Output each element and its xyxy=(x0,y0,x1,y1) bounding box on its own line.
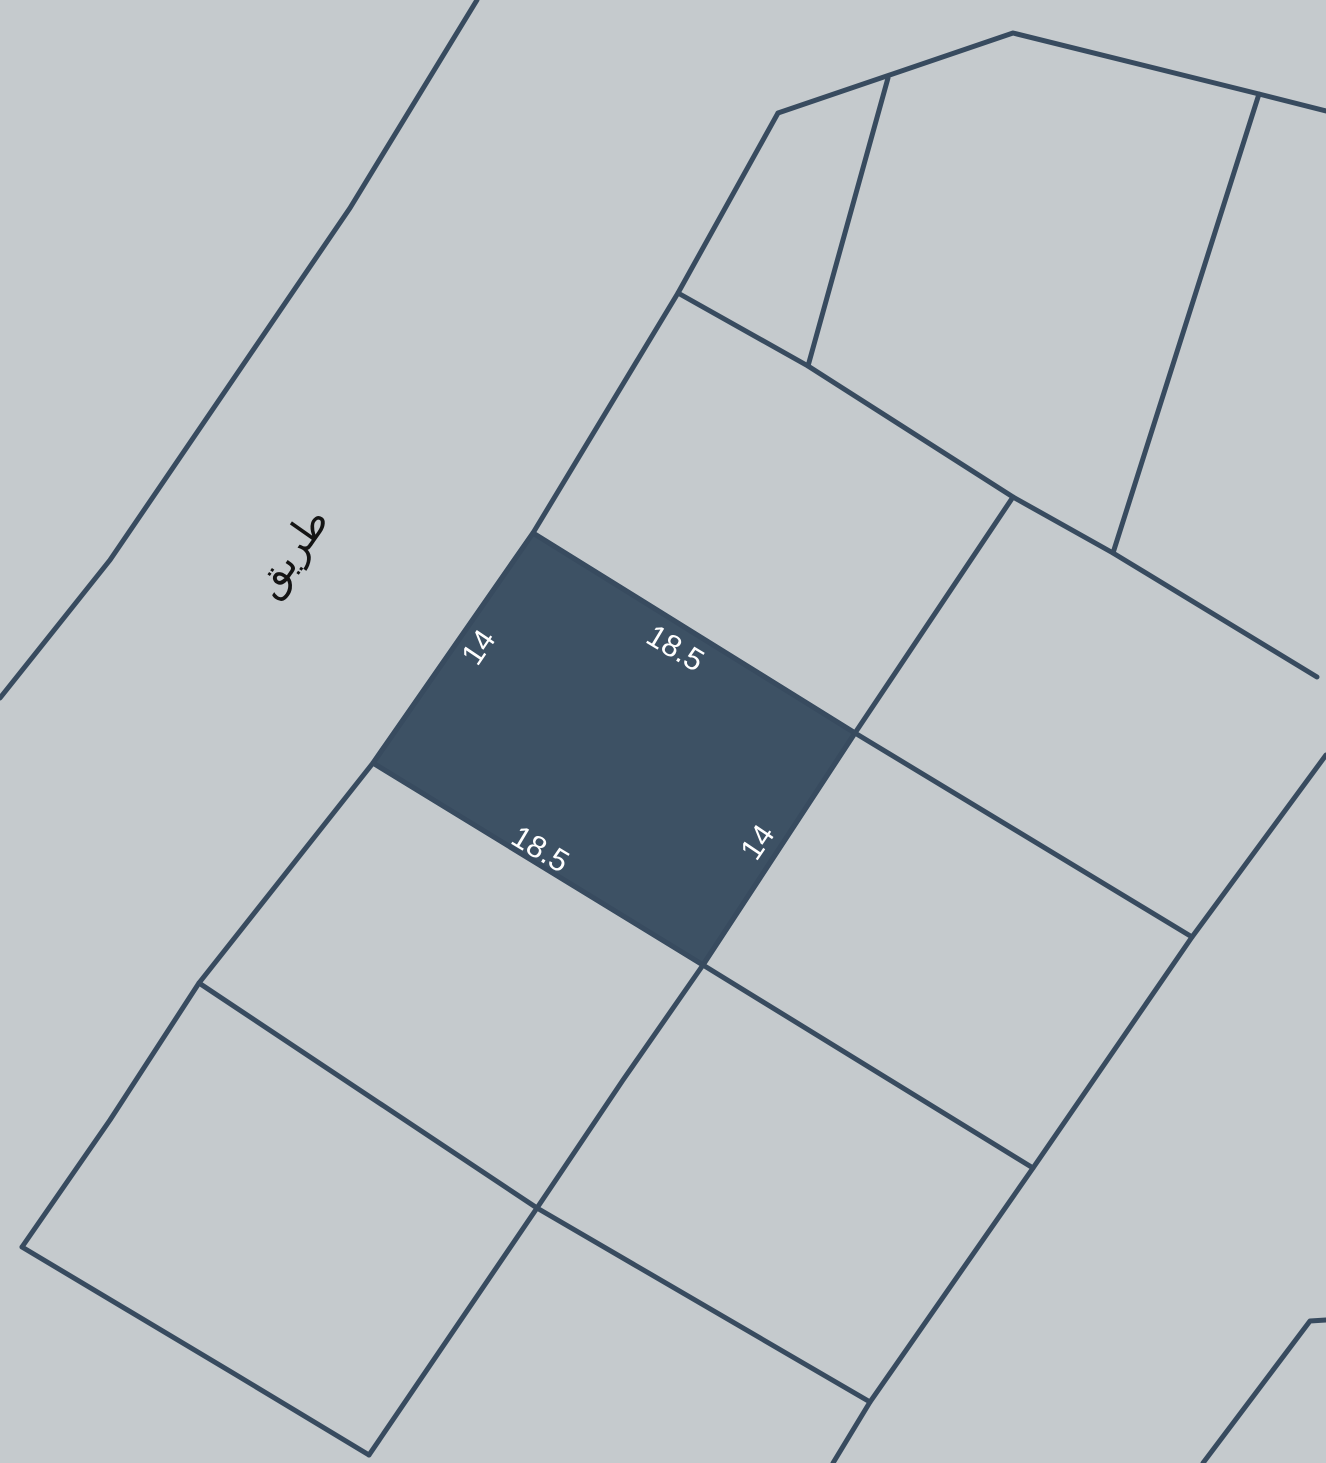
highlighted-parcel[interactable] xyxy=(373,533,855,965)
central-spine xyxy=(678,293,1317,677)
southwest-edge xyxy=(22,1247,369,1455)
road-west-edge xyxy=(0,0,477,698)
east-boundary xyxy=(833,755,1326,1463)
lower-divider xyxy=(703,965,1033,1168)
cadastral-map: 18.51418.514طريق xyxy=(0,0,1326,1463)
southeast-divider xyxy=(855,733,1192,937)
map-svg: 18.51418.514طريق xyxy=(0,0,1326,1463)
corner-line-southeast xyxy=(1203,1320,1326,1463)
block-north-edge xyxy=(778,33,1326,113)
southwest-spine xyxy=(199,983,870,1402)
road-name-label: طريق xyxy=(244,499,338,606)
northeast-divider xyxy=(1113,94,1259,553)
upper-divider xyxy=(808,78,888,366)
